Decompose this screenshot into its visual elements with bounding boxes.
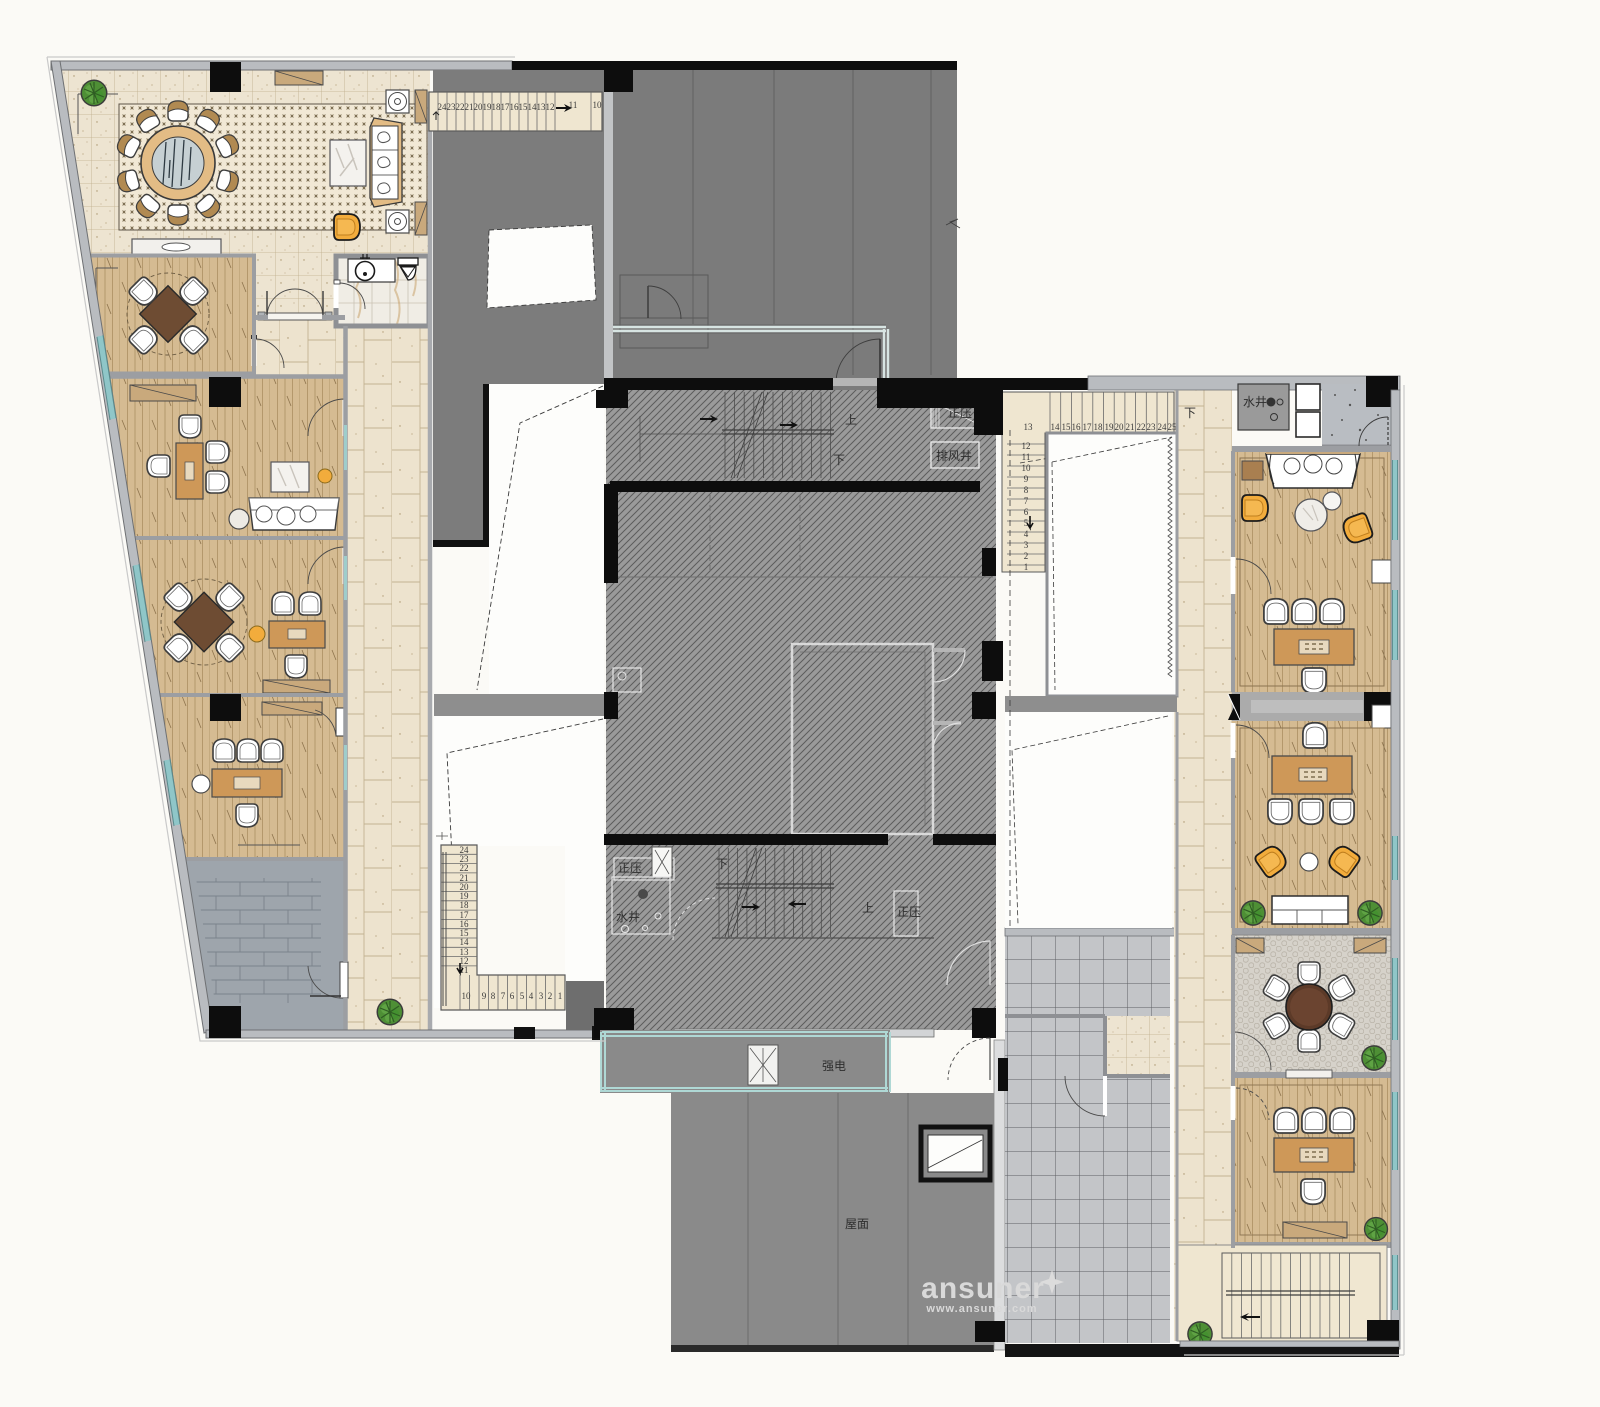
svg-text:7: 7 xyxy=(501,991,506,1001)
svg-text:20: 20 xyxy=(1115,422,1125,432)
svg-text:4: 4 xyxy=(1024,529,1029,539)
svg-text:1: 1 xyxy=(1024,562,1029,572)
svg-text:6: 6 xyxy=(1024,507,1029,517)
svg-text:下: 下 xyxy=(1184,406,1196,420)
svg-text:下: 下 xyxy=(716,857,728,871)
svg-text:8: 8 xyxy=(1024,485,1029,495)
svg-text:21: 21 xyxy=(465,102,474,112)
svg-text:7: 7 xyxy=(1024,496,1029,506)
svg-text:9: 9 xyxy=(1024,474,1029,484)
svg-text:23: 23 xyxy=(1147,422,1157,432)
svg-text:14: 14 xyxy=(1051,422,1061,432)
svg-text:屋面: 屋面 xyxy=(845,1217,869,1231)
svg-text:5: 5 xyxy=(520,991,525,1001)
svg-text:2: 2 xyxy=(1024,551,1029,561)
svg-text:8: 8 xyxy=(491,991,496,1001)
svg-text:正压: 正压 xyxy=(618,861,642,875)
svg-text:上: 上 xyxy=(862,901,874,915)
svg-text:21: 21 xyxy=(1126,422,1135,432)
svg-text:17: 17 xyxy=(1083,422,1093,432)
svg-text:10: 10 xyxy=(1022,463,1032,473)
svg-text:水井: 水井 xyxy=(616,910,640,924)
svg-text:22: 22 xyxy=(1137,422,1146,432)
svg-text:4: 4 xyxy=(529,991,534,1001)
svg-text:12: 12 xyxy=(546,102,555,112)
svg-text:3: 3 xyxy=(1024,540,1029,550)
svg-text:11: 11 xyxy=(1022,452,1031,462)
svg-text:15: 15 xyxy=(1062,422,1072,432)
svg-text:6: 6 xyxy=(510,991,515,1001)
svg-text:18: 18 xyxy=(460,900,470,910)
svg-text:12: 12 xyxy=(1022,441,1031,451)
svg-text:10: 10 xyxy=(593,100,603,110)
svg-text:19: 19 xyxy=(1105,422,1115,432)
svg-text:上: 上 xyxy=(845,413,857,427)
svg-text:22: 22 xyxy=(456,102,465,112)
svg-text:16: 16 xyxy=(1072,422,1082,432)
svg-text:水井: 水井 xyxy=(1243,395,1267,409)
svg-text:18: 18 xyxy=(1094,422,1104,432)
svg-text:9: 9 xyxy=(482,991,487,1001)
svg-text:2: 2 xyxy=(548,991,553,1001)
svg-text:13: 13 xyxy=(1024,422,1034,432)
svg-text:下: 下 xyxy=(833,453,845,467)
svg-text:正压: 正压 xyxy=(897,905,921,919)
svg-text:正压: 正压 xyxy=(948,406,972,420)
svg-text:14: 14 xyxy=(460,937,470,947)
svg-text:24: 24 xyxy=(1158,422,1168,432)
svg-text:22: 22 xyxy=(460,863,469,873)
svg-text:3: 3 xyxy=(539,991,544,1001)
svg-text:1: 1 xyxy=(558,991,563,1001)
svg-text:ansuner: ansuner xyxy=(921,1272,1045,1305)
svg-text:强电: 强电 xyxy=(822,1059,846,1073)
svg-text:排风井: 排风井 xyxy=(936,449,972,463)
svg-text:10: 10 xyxy=(462,991,472,1001)
svg-text:5: 5 xyxy=(1024,518,1029,528)
svg-text:www.ansuner.com: www.ansuner.com xyxy=(925,1303,1037,1315)
